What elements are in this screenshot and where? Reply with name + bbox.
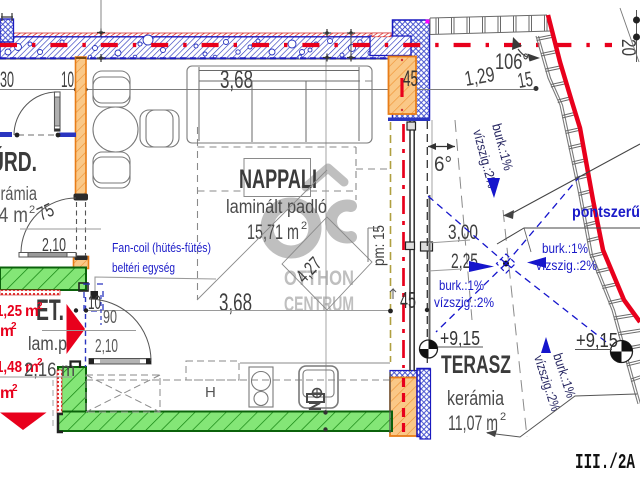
svg-text:CENTRUM: CENTRUM <box>284 293 354 316</box>
svg-text:III./2A: III./2A <box>575 452 635 475</box>
svg-text:1,25: 1,25 <box>0 303 22 320</box>
svg-text:TERASZ: TERASZ <box>441 351 511 379</box>
svg-text:2: 2 <box>37 301 43 312</box>
svg-text:45: 45 <box>400 287 416 313</box>
svg-text:ŰRD.: ŰRD. <box>0 146 37 177</box>
svg-text:90: 90 <box>103 307 117 327</box>
svg-text:2,16 m: 2,16 m <box>24 360 75 381</box>
svg-text:75: 75 <box>34 200 57 226</box>
svg-text:30: 30 <box>0 67 14 92</box>
svg-text:vízszig.:2%: vízszig.:2% <box>434 294 494 310</box>
svg-text:3,68: 3,68 <box>219 289 252 317</box>
svg-text:6°: 6° <box>434 153 452 176</box>
svg-text:5,64 m: 5,64 m <box>0 204 28 227</box>
svg-text:laminált padló: laminált padló <box>226 197 327 218</box>
svg-text:lam.p: lam.p <box>28 334 67 355</box>
svg-text:H: H <box>205 384 216 401</box>
svg-text:1,29: 1,29 <box>463 63 497 91</box>
svg-text:2: 2 <box>12 383 18 394</box>
svg-text:burk.:1%: burk.:1% <box>542 240 588 256</box>
svg-text:2: 2 <box>301 220 307 232</box>
svg-text:vízszig.:2%: vízszig.:2% <box>536 257 597 273</box>
svg-text:+9,15: +9,15 <box>576 330 618 352</box>
svg-text:10: 10 <box>88 293 101 314</box>
svg-text:burk.:1%: burk.:1% <box>439 277 484 293</box>
svg-text:2: 2 <box>500 411 506 423</box>
svg-text:NAPPALI: NAPPALI <box>239 164 317 194</box>
svg-text:pm: 15: pm: 15 <box>371 225 388 266</box>
svg-text:1,48: 1,48 <box>0 359 22 376</box>
svg-text:Fan-coil (hütés-fütés): Fan-coil (hütés-fütés) <box>112 240 211 255</box>
svg-text:beltéri egység: beltéri egység <box>112 260 175 275</box>
svg-text:kerámia: kerámia <box>447 388 505 410</box>
svg-text:kerámia: kerámia <box>0 184 37 205</box>
svg-text:pontszerű: pontszerű <box>572 204 640 221</box>
svg-text:10: 10 <box>61 67 74 92</box>
svg-text:15: 15 <box>516 68 535 93</box>
svg-text:2: 2 <box>11 321 17 332</box>
svg-text:2,10: 2,10 <box>95 336 118 356</box>
svg-text:45: 45 <box>403 66 418 91</box>
